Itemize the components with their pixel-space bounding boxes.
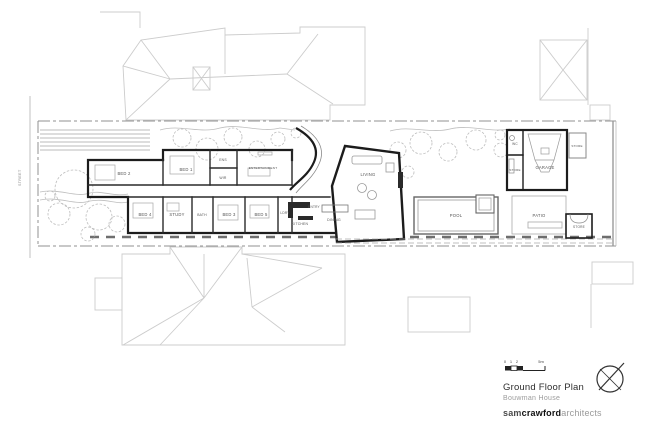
room-label-bath: BATH — [197, 213, 207, 217]
project-name: Bouwman House — [503, 395, 643, 402]
room-label-dining: DINING — [327, 218, 341, 222]
room-label-bed-5: BED 5 — [254, 212, 268, 217]
room-label-kitchen: KITCHEN — [292, 222, 309, 226]
scale-end-label: 5m — [538, 359, 544, 364]
house-entry-curved-wall — [290, 126, 322, 193]
room-label-ens: ENS — [219, 158, 227, 162]
room-label-wir: WIR — [219, 176, 227, 180]
scale-tick-1: 1 — [510, 359, 513, 364]
neighbor-outbuildings-south — [408, 262, 633, 332]
title-block: Ground Floor Plan Bouwman House samcrawf… — [503, 374, 643, 418]
plan-linework: STREET — [0, 0, 649, 423]
room-label-bed-1: BED 1 — [179, 167, 193, 172]
room-label-store: STORE — [573, 225, 585, 229]
room-label-study: STUDY — [169, 212, 184, 217]
scale-bar: 012 5m — [504, 359, 545, 371]
room-label-store: STORE — [509, 168, 520, 172]
drawing-title: Ground Floor Plan — [503, 382, 643, 393]
floor-plan-drawing: STREET — [0, 0, 649, 423]
scale-tick-0: 0 — [504, 359, 507, 364]
room-label-ldry: LDRY — [280, 211, 290, 215]
room-label-living: LIVING — [361, 172, 376, 177]
logo-part-architects: architects — [561, 408, 602, 418]
room-label-bed-3: BED 3 — [222, 212, 236, 217]
neighbor-roof-northeast — [540, 28, 610, 120]
logo-part-crawford: crawford — [522, 408, 562, 418]
scale-tick-2: 2 — [516, 359, 519, 364]
room-label-entertainment: ENTERTAINMENT — [249, 166, 278, 170]
room-label-wc: WC — [512, 142, 518, 146]
room-label-store: STORE — [571, 144, 582, 148]
double-door-swing-arcs — [570, 214, 588, 223]
street-name-label: STREET — [18, 169, 22, 186]
room-label-entry: ENTRY — [308, 205, 320, 209]
room-label-bed-2: BED 2 — [117, 171, 131, 176]
room-label-bed-4: BED 4 — [138, 212, 152, 217]
room-label-pool: POOL — [450, 213, 463, 218]
room-label-patio: PATIO — [533, 213, 546, 218]
fireplace — [398, 172, 403, 188]
neighbor-roof-south — [95, 247, 345, 345]
logo-part-sam: sam — [503, 408, 522, 418]
architect-logo: samcrawfordarchitects — [503, 408, 643, 418]
room-label-garage: GARAGE — [535, 165, 554, 170]
neighbor-roof-north — [100, 12, 365, 120]
